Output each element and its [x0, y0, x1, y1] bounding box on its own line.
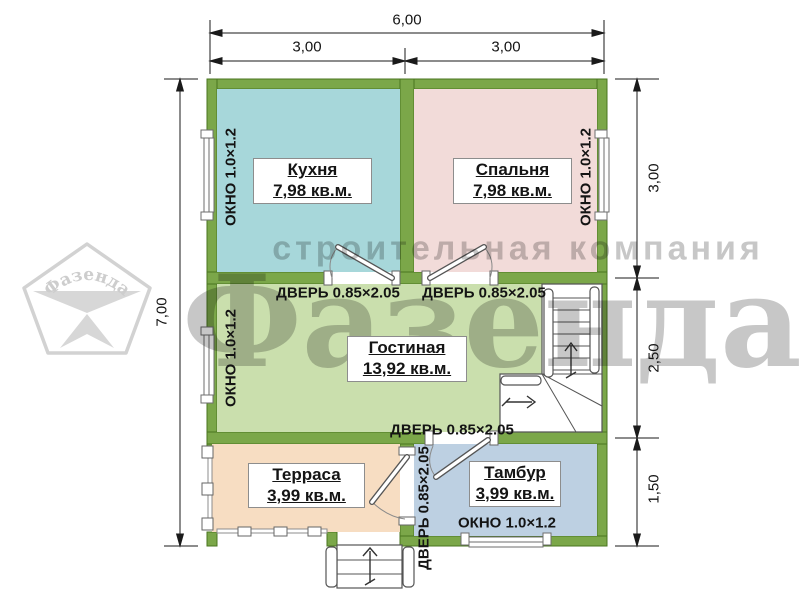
window-label-kitchen: ОКНО 1.0×1.2	[223, 128, 240, 226]
dim-right-top: 3,00	[646, 163, 663, 192]
door-label-bedroom: ДВЕРЬ 0.85×2.05	[422, 285, 546, 302]
logo-mark	[60, 314, 114, 348]
window-label-living: ОКНО 1.0×1.2	[223, 309, 240, 407]
room-label-vestibule: Тамбур 3,99 кв.м.	[469, 461, 561, 507]
door-label-kitchen: ДВЕРЬ 0.85×2.05	[276, 285, 400, 302]
door-label-vestibule: ДВЕРЬ 0.85×2.05	[390, 422, 514, 439]
dim-total-width: 6,00	[392, 12, 421, 29]
floor-plan-page: строительная компания Фазенда Фазенда 6,…	[0, 0, 800, 600]
dim-total-height: 7,00	[154, 297, 171, 326]
wall-stub-terrace-bottom	[207, 532, 217, 546]
dim-width-left: 3,00	[292, 39, 321, 56]
living-name: Гостиная	[364, 338, 451, 359]
terrace-area: 3,99 кв.м.	[262, 486, 351, 507]
room-label-terrace: Терраса 3,99 кв.м.	[248, 463, 365, 508]
entrance-porch	[326, 545, 414, 588]
terrace-name: Терраса	[267, 465, 345, 486]
bedroom-area: 7,98 кв.м.	[468, 181, 557, 202]
window-label-vestibule: ОКНО 1.0×1.2	[458, 515, 556, 532]
window-kitchen	[201, 130, 214, 220]
porch-rail-right	[403, 547, 414, 587]
kitchen-area: 7,98 кв.м.	[268, 181, 357, 202]
vestibule-name: Тамбур	[479, 463, 551, 484]
window-label-bedroom: ОКНО 1.0×1.2	[578, 128, 595, 226]
porch-rail-left	[326, 547, 337, 587]
room-label-living: Гостиная 13,92 кв.м.	[347, 336, 467, 382]
dim-right-middle: 2,50	[646, 343, 663, 372]
bedroom-name: Спальня	[471, 160, 554, 181]
wall-stub-porch	[327, 532, 337, 546]
vestibule-area: 3,99 кв.м.	[471, 484, 560, 505]
watermark-brand-text: Фазенда	[182, 248, 800, 396]
kitchen-name: Кухня	[283, 160, 343, 181]
dim-right-bottom: 1,50	[646, 474, 663, 503]
door-label-terrace: ДВЕРЬ 0.85×2.05	[416, 446, 433, 570]
dim-width-right: 3,00	[491, 39, 520, 56]
room-label-bedroom: Спальня 7,98 кв.м.	[453, 158, 572, 204]
living-area: 13,92 кв.м.	[358, 359, 456, 380]
room-label-kitchen: Кухня 7,98 кв.м.	[253, 158, 372, 204]
